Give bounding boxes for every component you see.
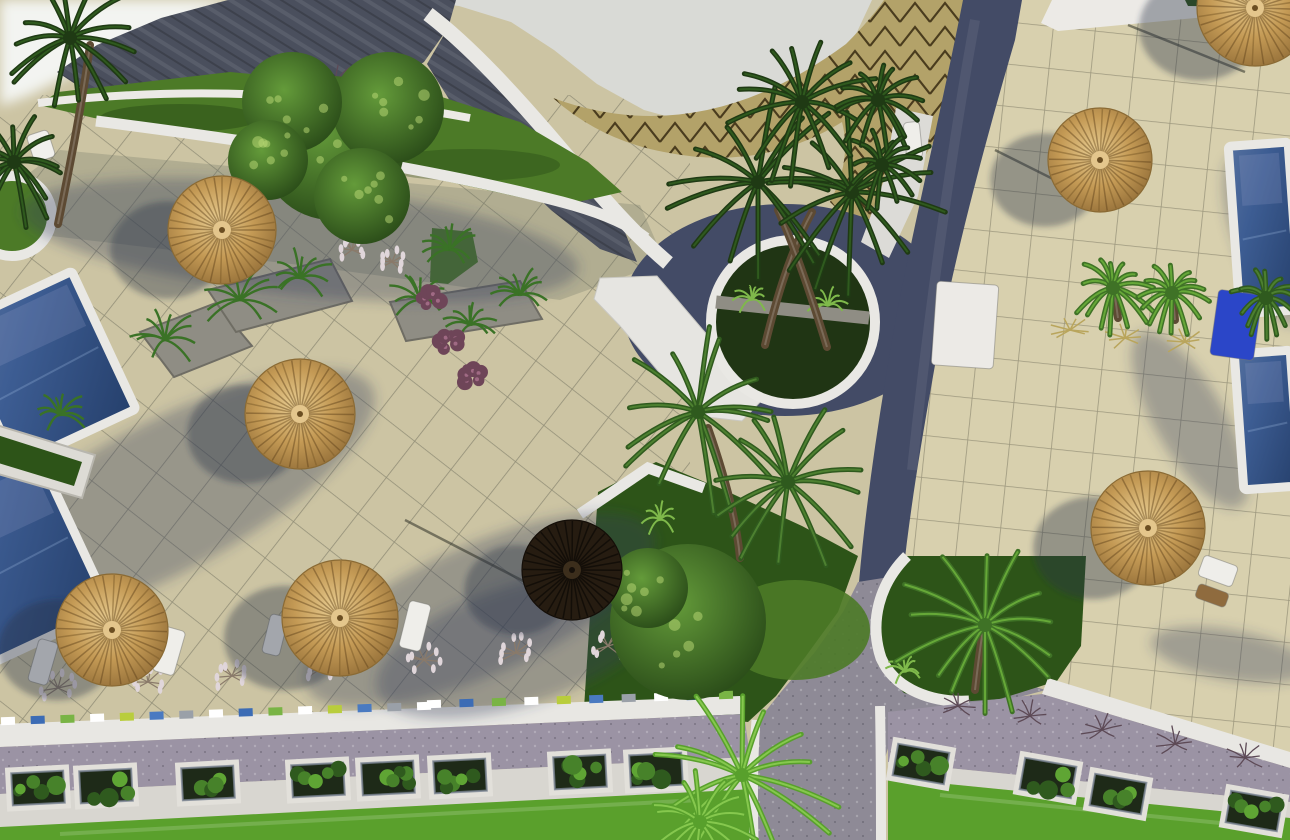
plume-tip — [360, 250, 365, 259]
mosaic-tile — [90, 714, 104, 722]
purple-bloom — [436, 299, 440, 303]
mosaic-tile — [589, 695, 603, 703]
mosaic-tile — [459, 699, 473, 707]
frond-crown — [693, 815, 707, 829]
mosaic-tile — [1, 717, 15, 725]
leaf-highlight — [657, 576, 664, 583]
plume-tip — [240, 677, 245, 686]
plume-tip — [524, 653, 529, 662]
mosaic-tile — [239, 708, 253, 716]
leaf-highlight — [333, 139, 342, 148]
mosaic-tile — [60, 715, 74, 723]
parasol-pole-top — [109, 627, 115, 633]
leaf-highlight — [341, 176, 347, 182]
plume-tip — [398, 265, 403, 274]
leaf-highlight — [249, 161, 258, 170]
leafy-tree — [314, 148, 410, 244]
scene-canvas — [0, 0, 1290, 840]
white-deck-mat — [931, 281, 999, 369]
leaf-highlight — [673, 650, 680, 657]
leaf-highlight — [374, 195, 383, 204]
plume-tip — [409, 651, 414, 660]
leaf-highlight — [621, 593, 633, 605]
plume-tip — [591, 646, 596, 655]
frond-crown — [871, 93, 885, 107]
parasol-pole-top — [1252, 5, 1258, 11]
plume-tip — [380, 252, 385, 261]
purple-bloom — [453, 342, 457, 346]
leaf-highlight — [379, 108, 388, 117]
leaf-highlight — [418, 89, 429, 100]
plume-tip — [501, 642, 506, 651]
road-wall-east — [880, 706, 881, 840]
mosaic-tile — [427, 700, 441, 708]
planter-box-left — [427, 752, 493, 799]
mosaic-tile — [492, 698, 506, 706]
planter-box-left — [73, 762, 139, 809]
planter-box-left — [547, 748, 613, 795]
leaf-highlight — [693, 612, 702, 621]
pool-reflection — [1239, 153, 1282, 206]
mosaic-tile — [120, 712, 134, 720]
parasol-spoke — [340, 561, 341, 613]
leaf-highlight — [364, 186, 372, 194]
frond-crown — [751, 175, 765, 189]
leaf-highlight — [379, 98, 387, 106]
leaf-highlight — [621, 605, 627, 611]
leaf-highlight — [385, 215, 393, 223]
parasol-pole-top — [297, 411, 303, 417]
mosaic-tile — [524, 697, 538, 705]
mosaic-tile — [557, 696, 571, 704]
leaf-highlight — [267, 156, 275, 164]
tree-canopy — [332, 52, 444, 164]
mosaic-tile — [149, 711, 163, 719]
frond-crown — [7, 155, 21, 169]
plume-tip — [223, 662, 228, 671]
leaf-highlight — [376, 171, 385, 180]
parasol-spoke — [246, 413, 295, 414]
parasol-pole-top — [219, 227, 225, 233]
parasol-pole-top — [1145, 525, 1151, 531]
leafy-tree — [332, 52, 444, 164]
leaf-highlight — [683, 641, 694, 652]
leaf-highlight — [266, 96, 274, 104]
frond-crown — [875, 158, 889, 172]
pool-reflection — [1245, 361, 1284, 404]
mosaic-tile — [357, 704, 371, 712]
planter-box-left — [355, 754, 421, 801]
parasol-spoke — [1049, 159, 1095, 160]
plume-tip — [434, 647, 439, 656]
leaf-highlight — [372, 93, 378, 99]
parasol-spoke — [1099, 165, 1100, 211]
leaf-highlight — [263, 140, 270, 147]
leaf-highlight — [370, 180, 377, 187]
planter-box-left — [175, 759, 241, 806]
mosaic-tile — [298, 706, 312, 714]
mosaic-tile — [268, 707, 282, 715]
purple-bloom — [475, 377, 479, 381]
mosaic-tile — [328, 705, 342, 713]
plume-tip — [395, 245, 400, 254]
frond-crown — [1259, 291, 1273, 305]
parasol-spoke — [523, 569, 567, 570]
plume-tip — [215, 673, 220, 682]
leaf-highlight — [303, 127, 309, 133]
plume-tip — [412, 665, 417, 674]
leaf-highlight — [640, 587, 649, 596]
plume-tip — [339, 244, 344, 253]
leaf-highlight — [408, 124, 413, 129]
mosaic-tile — [31, 716, 45, 724]
parasol-pole-top — [337, 615, 343, 621]
frond-crown — [63, 31, 77, 45]
leaf-highlight — [274, 95, 281, 102]
planter-box-left — [285, 756, 351, 803]
leaf-highlight — [394, 77, 403, 86]
leaf-highlight — [415, 116, 423, 124]
leaf-highlight — [627, 583, 636, 592]
leaf-highlight — [283, 115, 291, 123]
leaf-highlight — [631, 606, 642, 617]
leaf-highlight — [319, 104, 328, 113]
plume-tip — [431, 664, 436, 673]
plume-tip — [527, 638, 532, 647]
frond-crown — [781, 475, 795, 489]
parasol-spoke — [571, 575, 572, 619]
parasol-spoke — [1092, 527, 1143, 528]
frond-crown — [795, 95, 809, 109]
aerial-resort-render — [0, 0, 1290, 840]
parasol-pole-top — [569, 567, 575, 573]
plume-tip — [158, 685, 163, 694]
leaf-highlight — [316, 156, 324, 164]
frond-crown — [1106, 281, 1120, 295]
swimming-pool — [1234, 350, 1290, 490]
leaf-highlight — [624, 570, 630, 576]
plume-tip — [600, 630, 605, 639]
leaf-highlight — [280, 149, 288, 157]
frond-crown — [978, 618, 992, 632]
plume-tip — [215, 682, 220, 691]
frond-crown — [735, 768, 749, 782]
parasol-pole-top — [1097, 157, 1103, 163]
mosaic-tile — [622, 694, 636, 702]
mosaic-tile — [387, 703, 401, 711]
plume-tip — [385, 249, 390, 258]
mosaic-tile — [179, 710, 193, 718]
plume-tip — [219, 664, 224, 673]
frond-crown — [1165, 286, 1179, 300]
plume-tip — [438, 657, 443, 666]
planter-box-left — [5, 764, 71, 811]
purple-bloom — [477, 371, 481, 375]
mosaic-tile — [209, 709, 223, 717]
leaf-highlight — [354, 190, 363, 199]
plume-tip — [340, 253, 345, 262]
leaf-highlight — [659, 662, 665, 668]
leaf-highlight — [252, 136, 264, 148]
frond-crown — [691, 405, 705, 419]
plume-tip — [426, 642, 431, 651]
leaf-highlight — [284, 132, 290, 138]
